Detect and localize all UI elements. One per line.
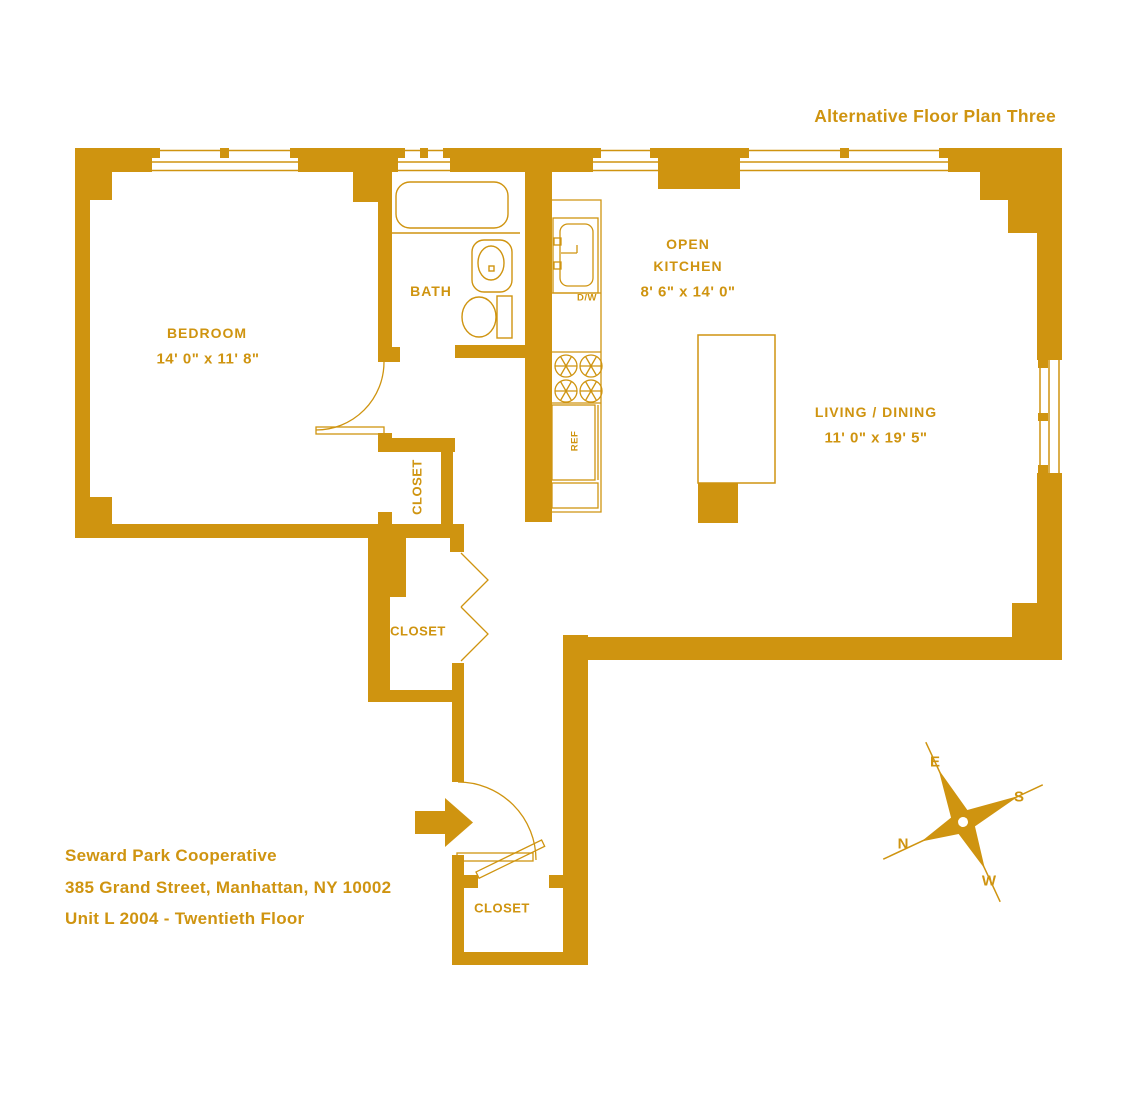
compass-rose-icon bbox=[846, 705, 1080, 939]
kitchen-island bbox=[698, 335, 775, 483]
living-dining-dims: 11' 0" x 19' 5" bbox=[824, 430, 927, 447]
closet-upper-label: CLOSET bbox=[410, 459, 425, 515]
floor-plan-page: Alternative Floor Plan Three BEDROOM 14'… bbox=[0, 0, 1139, 1100]
footer-address-block: Seward Park Cooperative 385 Grand Street… bbox=[65, 840, 391, 935]
compass-west-label: W bbox=[982, 873, 996, 890]
entry-closet-door bbox=[457, 840, 545, 878]
closet-lower-label: CLOSET bbox=[390, 624, 446, 639]
kitchen-sink bbox=[553, 218, 598, 293]
window-right bbox=[1037, 360, 1062, 473]
closet-entry-label: CLOSET bbox=[474, 901, 530, 916]
compass-east-label: E bbox=[930, 754, 940, 771]
bifold-closet-door bbox=[461, 553, 488, 661]
kitchen-fixtures bbox=[552, 200, 602, 512]
living-dining-label: LIVING / DINING bbox=[815, 404, 937, 420]
entry-arrow-icon bbox=[415, 798, 473, 847]
compass-south-label: S bbox=[1014, 789, 1024, 806]
dishwasher-label: D/W bbox=[577, 293, 597, 304]
kitchen-dims: 8' 6" x 14' 0" bbox=[640, 284, 735, 301]
kitchen-label-line1: OPEN bbox=[666, 236, 710, 252]
bedroom-label: BEDROOM bbox=[167, 325, 247, 341]
refrigerator-label: REF bbox=[570, 431, 581, 452]
island-column bbox=[698, 483, 738, 523]
toilet bbox=[462, 296, 512, 338]
stove-burners bbox=[552, 355, 602, 403]
bathtub bbox=[396, 182, 508, 228]
bath-fixtures bbox=[392, 182, 520, 338]
plan-title: Alternative Floor Plan Three bbox=[814, 106, 1056, 127]
footer-unit: Unit L 2004 - Twentieth Floor bbox=[65, 903, 391, 935]
bedroom-door bbox=[316, 362, 384, 434]
bedroom-dims: 14' 0" x 11' 8" bbox=[156, 351, 259, 368]
window-pillar bbox=[658, 172, 740, 189]
compass-north-label: N bbox=[898, 836, 909, 853]
kitchen-label-line2: KITCHEN bbox=[653, 258, 722, 274]
footer-address: 385 Grand Street, Manhattan, NY 10002 bbox=[65, 872, 391, 904]
floor-plan-drawing bbox=[0, 0, 1139, 1100]
bath-label: BATH bbox=[410, 283, 452, 299]
bath-sink bbox=[472, 240, 512, 292]
footer-building: Seward Park Cooperative bbox=[65, 840, 391, 872]
kitchen-cabinet bbox=[552, 483, 598, 508]
